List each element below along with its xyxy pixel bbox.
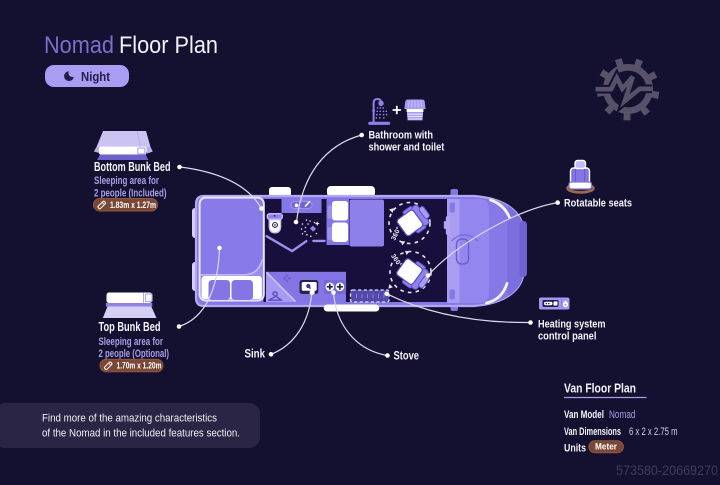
svg-text:Meter: Meter xyxy=(595,442,617,452)
svg-text:Van Model: Van Model xyxy=(564,409,604,421)
svg-text:Top Bunk Bed: Top Bunk Bed xyxy=(99,319,161,334)
svg-text:Bathroom with: Bathroom with xyxy=(369,130,434,142)
svg-text:573580-20669270: 573580-20669270 xyxy=(616,462,718,478)
svg-text:Stove: Stove xyxy=(394,351,420,363)
svg-text:2 people (Optional): 2 people (Optional) xyxy=(99,348,170,360)
svg-text:1.83m x 1.27m: 1.83m x 1.27m xyxy=(110,200,156,210)
svg-text:Nomad: Nomad xyxy=(609,409,636,421)
svg-text:Floor Plan: Floor Plan xyxy=(119,32,218,59)
svg-text:Sleeping area for: Sleeping area for xyxy=(94,175,160,187)
svg-text:Rotatable seats: Rotatable seats xyxy=(564,198,632,210)
svg-text:6 x 2 x 2.75 m: 6 x 2 x 2.75 m xyxy=(629,426,678,438)
svg-text:of the Nomad in the included f: of the Nomad in the included features se… xyxy=(42,428,240,440)
svg-text:2 people (Included): 2 people (Included) xyxy=(94,188,167,200)
svg-text:Nomad: Nomad xyxy=(44,32,114,59)
svg-text:Van Floor Plan: Van Floor Plan xyxy=(564,381,636,396)
svg-text:control panel: control panel xyxy=(538,331,596,343)
svg-text:shower and toilet: shower and toilet xyxy=(369,142,445,154)
svg-text:Bottom Bunk Bed: Bottom Bunk Bed xyxy=(94,159,171,174)
svg-text:1.70m x 1.20m: 1.70m x 1.20m xyxy=(117,361,162,371)
svg-text:Find more of the amazing chara: Find more of the amazing characteristics xyxy=(42,413,217,425)
svg-text:Sleeping area for: Sleeping area for xyxy=(99,336,164,348)
svg-text:Van Dimensions: Van Dimensions xyxy=(564,426,621,438)
svg-text:Sink: Sink xyxy=(245,349,266,361)
svg-text:Units: Units xyxy=(564,443,586,455)
svg-text:Night: Night xyxy=(81,69,111,84)
svg-text:Heating system: Heating system xyxy=(538,319,606,331)
